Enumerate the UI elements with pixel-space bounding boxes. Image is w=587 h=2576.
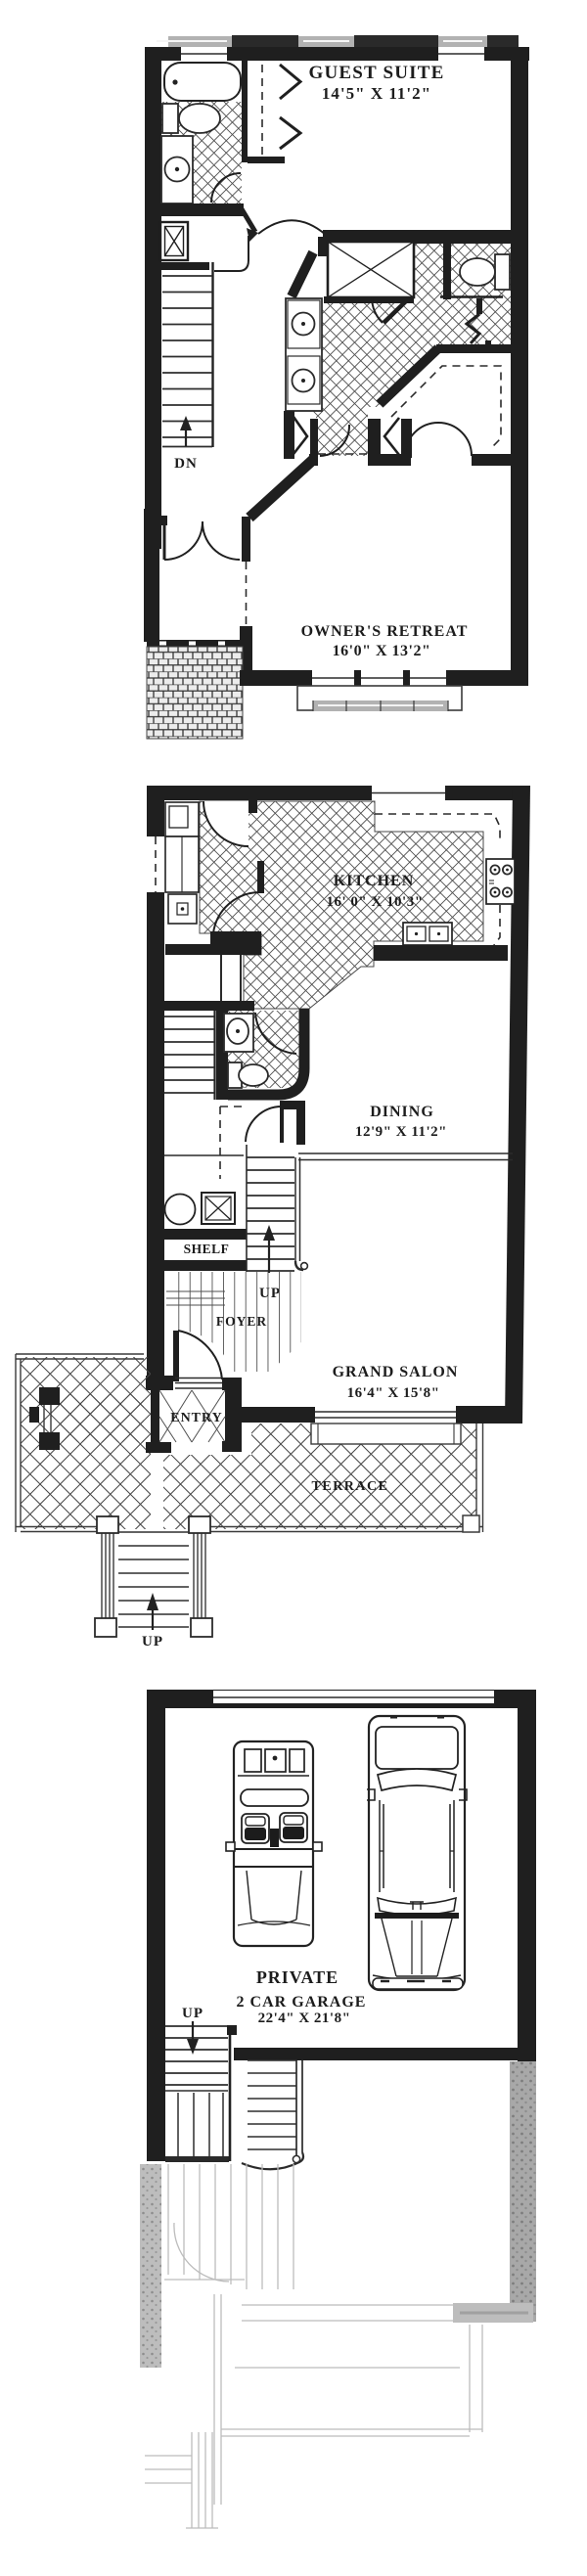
svg-text:UP: UP: [182, 2006, 203, 2021]
svg-text:16' 0" X 10'3": 16' 0" X 10'3": [326, 894, 423, 910]
svg-text:PRIVATE: PRIVATE: [256, 1967, 339, 1987]
svg-text:2 CAR GARAGE: 2 CAR GARAGE: [237, 1994, 367, 2011]
svg-text:14'5" X 11'2": 14'5" X 11'2": [322, 84, 431, 103]
svg-text:GRAND SALON: GRAND SALON: [333, 1364, 459, 1380]
svg-text:DN: DN: [174, 456, 198, 472]
svg-text:SHELF: SHELF: [184, 1242, 230, 1256]
svg-text:DINING: DINING: [370, 1104, 434, 1120]
svg-text:UP: UP: [142, 1634, 163, 1650]
svg-text:22'4" X 21'8": 22'4" X 21'8": [258, 2011, 351, 2026]
svg-text:TERRACE: TERRACE: [312, 1479, 389, 1494]
svg-text:KITCHEN: KITCHEN: [334, 873, 415, 889]
svg-text:16'4" X 15'8": 16'4" X 15'8": [347, 1385, 440, 1401]
svg-text:FOYER: FOYER: [216, 1314, 267, 1329]
svg-text:GUEST SUITE: GUEST SUITE: [308, 63, 444, 83]
svg-text:ENTRY: ENTRY: [170, 1411, 223, 1425]
svg-text:OWNER'S RETREAT: OWNER'S RETREAT: [301, 623, 469, 640]
svg-text:12'9" X 11'2": 12'9" X 11'2": [355, 1124, 447, 1140]
svg-text:16'0" X 13'2": 16'0" X 13'2": [333, 643, 431, 659]
